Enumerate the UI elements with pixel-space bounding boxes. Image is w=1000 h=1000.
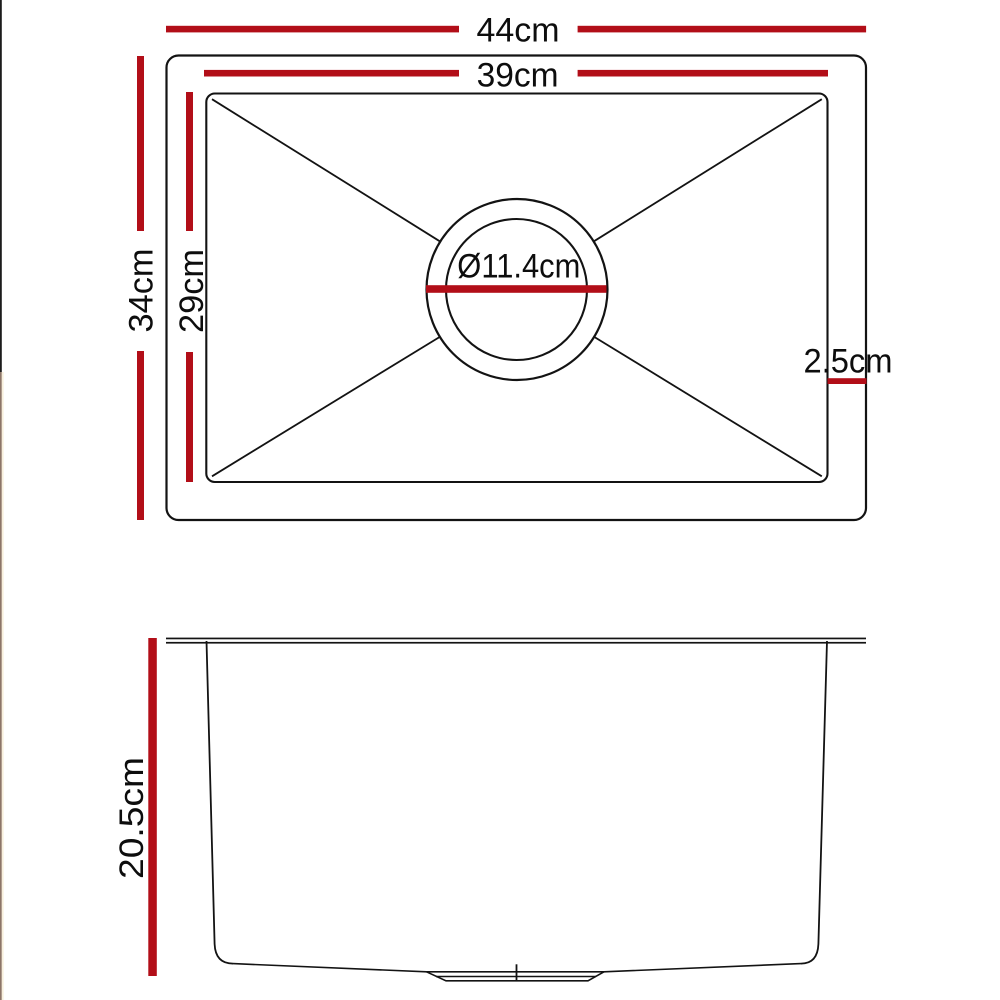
- svg-text:2.5cm: 2.5cm: [804, 343, 893, 381]
- svg-text:34cm: 34cm: [123, 249, 161, 333]
- svg-text:Ø11.4cm: Ø11.4cm: [457, 248, 580, 286]
- svg-text:44cm: 44cm: [477, 12, 560, 50]
- svg-text:39cm: 39cm: [477, 56, 559, 94]
- svg-text:29cm: 29cm: [173, 249, 211, 333]
- svg-text:20.5cm: 20.5cm: [113, 757, 151, 879]
